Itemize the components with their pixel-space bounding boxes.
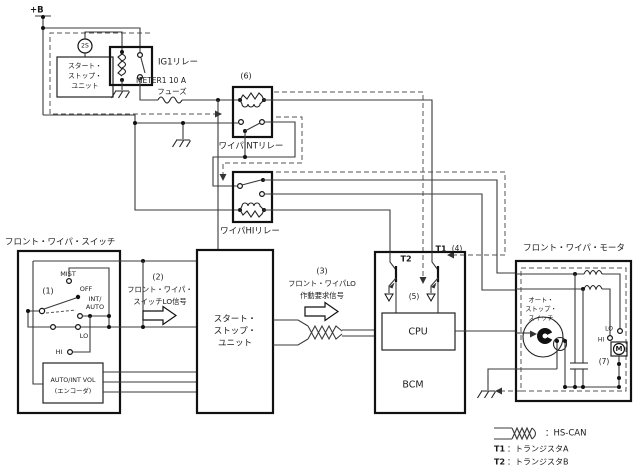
switch-common-pivot xyxy=(39,308,44,313)
encoder-line1: AUTO/INT VOL xyxy=(51,377,96,384)
small-unit-line1: スタート・ xyxy=(68,61,102,70)
relay-coil-icon xyxy=(122,54,126,75)
hi-label: HI xyxy=(56,348,63,356)
plus-b-label: +B xyxy=(30,6,44,16)
step5-label: (5) xyxy=(409,292,420,301)
fuse-icon xyxy=(158,97,182,103)
lo-label: LO xyxy=(80,332,89,340)
bcm-label: BCM xyxy=(402,380,423,391)
step2-label: (2) xyxy=(152,273,163,282)
hi-coil-resistor-icon xyxy=(240,210,264,217)
wiper-int-relay: (6) ワイパINTリレー xyxy=(213,72,432,253)
encoder-line2: (エンコーダ) xyxy=(55,386,91,395)
step3-label: (3) xyxy=(316,267,327,276)
hi-coil-icon xyxy=(240,203,264,210)
step6-label: (6) xyxy=(240,72,251,81)
fuse-word-label: フューズ xyxy=(157,86,187,96)
power-supply-block: +B 2S スタート・ ストップ・ ユニット IG1リレー METER1 10 … xyxy=(30,6,238,251)
unit-line1: スタート・ xyxy=(214,315,257,325)
wiring-diagram-page: +B 2S スタート・ ストップ・ ユニット IG1リレー METER1 10 … xyxy=(0,0,640,470)
step7-label: (7) xyxy=(599,357,610,366)
lo-contact-a xyxy=(51,325,56,330)
small-unit-line2: ストップ・ xyxy=(68,72,102,80)
legend-t1-desc: ：トランジスタA xyxy=(507,445,569,454)
mist-contact xyxy=(67,279,72,284)
signal2-annotation: (2) フロント・ワイパ・ スイッチLO信号 xyxy=(127,273,193,325)
step5-arrow-down-icon xyxy=(420,277,427,284)
legend-t2-desc: ：トランジスタB xyxy=(507,458,569,467)
signal3-annotation: (3) フロント・ワイパLO 作動要求信号 xyxy=(273,267,375,346)
ig1-relay-label: IG1リレー xyxy=(158,58,198,68)
mist-label: MIST xyxy=(60,270,76,278)
int-coil-icon xyxy=(240,100,264,107)
capacitor1-icon xyxy=(570,363,580,369)
off-contact xyxy=(76,295,80,299)
start-stop-unit: スタート・ ストップ・ ユニット xyxy=(197,250,273,413)
signal3-line2: 作動要求信号 xyxy=(300,291,344,300)
signal2-line1: フロント・ワイパ・ xyxy=(127,285,193,294)
motor-hi-label: HI xyxy=(598,337,605,344)
relay-coil-resistor-icon xyxy=(118,54,122,76)
int-auto-label2: AUTO xyxy=(86,303,104,311)
capacitor2-icon xyxy=(578,363,588,369)
front-wiper-wiring-diagram: +B 2S スタート・ ストップ・ ユニット IG1リレー METER1 10 … xyxy=(0,0,640,470)
motor-lo-label: LO xyxy=(605,326,613,333)
front-wiper-motor: フロント・ワイパ・モータ オート・ ストップ・ スイッチ xyxy=(478,244,632,402)
off-label: OFF xyxy=(80,285,93,293)
step1-label: (1) xyxy=(42,287,53,296)
int-auto-contact xyxy=(78,314,83,319)
hi-contact xyxy=(68,350,73,355)
autostop-line1: オート・ xyxy=(528,296,553,304)
auto-stop-switch-icon xyxy=(516,317,567,357)
flow-arrow-down-icon xyxy=(220,174,227,181)
signal3-line1: フロント・ワイパLO xyxy=(288,279,356,288)
wiper-motor-title: フロント・ワイパ・モータ xyxy=(523,244,625,254)
signal3-block-arrow-icon xyxy=(305,303,338,321)
hs-can-legend-icon xyxy=(494,428,536,439)
wiper-switch-title: フロント・ワイパ・スイッチ xyxy=(5,238,115,248)
int-auto-label1: INT/ xyxy=(89,295,103,303)
hi-brush-contact xyxy=(608,336,613,341)
small-unit-line3: ユニット xyxy=(71,82,98,90)
t1-label: T1 xyxy=(435,245,446,254)
step7-arrow-left-icon xyxy=(495,388,502,395)
legend-t1: T1 xyxy=(494,445,505,454)
fuse-name-label: METER1 10 A xyxy=(136,76,187,85)
cpu-label: CPU xyxy=(408,327,427,338)
wiper-hi-relay: ワイパHIリレー xyxy=(220,172,516,290)
wiper-motor-box xyxy=(516,261,631,401)
unit-line3: ユニット xyxy=(218,339,252,349)
signal2-block-arrow-icon xyxy=(143,307,176,325)
lo-brush-contact xyxy=(618,329,623,334)
transistor-t2-icon xyxy=(385,252,396,313)
choke1-icon xyxy=(584,271,602,275)
step4-label: (4) xyxy=(452,244,463,253)
front-wiper-switch: フロント・ワイパ・スイッチ MIST (1) OFF INT/ AUTO HI … xyxy=(5,238,197,414)
hi-relay-label: ワイパHIリレー xyxy=(220,227,280,237)
legend-t2: T2 xyxy=(494,458,505,467)
choke2-icon xyxy=(584,286,602,290)
connector-2s-label: 2S xyxy=(81,43,89,50)
bcm-module: T2 T1 (4) (5) CPU BCM xyxy=(375,244,516,413)
unit-line2: ストップ・ xyxy=(214,327,257,337)
legend-hscan-label: ：HS-CAN xyxy=(545,429,586,439)
int-coil-resistor-icon xyxy=(240,93,264,100)
transistor-t1-icon xyxy=(427,252,438,313)
legend: ：HS-CAN T1 ：トランジスタA T2 ：トランジスタB xyxy=(494,428,586,467)
lo-contact-b xyxy=(76,325,81,330)
int-relay-label: ワイパINTリレー xyxy=(219,142,284,152)
autostop-line2: ストップ・ xyxy=(525,305,556,313)
t2-label: T2 xyxy=(400,255,411,264)
signal2-line2: スイッチLO信号 xyxy=(133,297,186,306)
motor-m-label: M xyxy=(616,345,623,353)
